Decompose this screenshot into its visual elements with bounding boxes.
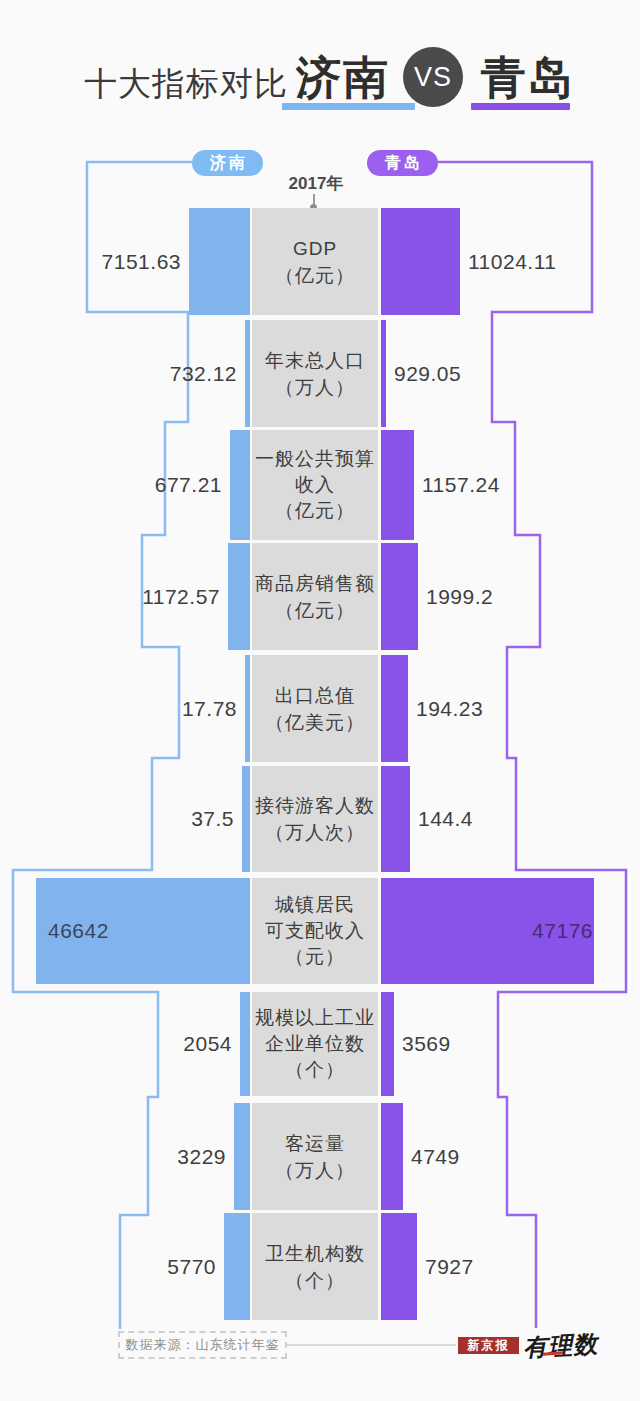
qingdao-value: 4749 (411, 1103, 460, 1210)
indicator-label-line: 企业单位数 (265, 1031, 365, 1057)
indicator-label-line: （亿元） (275, 498, 355, 524)
qingdao-value: 1157.24 (422, 430, 500, 540)
page-title-prefix: 十大指标对比： (84, 62, 322, 107)
youlishu-logo: 有理数 (522, 1328, 599, 1364)
indicator-label-line: 出口总值 (275, 682, 355, 709)
indicator-label-box: 接待游客人数（万人次） (252, 766, 378, 872)
indicator-label-line: （万人） (275, 374, 355, 401)
indicator-label-box: 卫生机构数（个） (252, 1213, 378, 1320)
indicator-label-box: 商品房销售额（亿元） (252, 543, 378, 650)
indicator-label-line: （个） (285, 1057, 345, 1083)
comparison-row: 一般公共预算收入（亿元）677.211157.24 (0, 430, 640, 540)
indicator-label-line: （个） (285, 1267, 345, 1294)
indicator-label-line: 可支配收入 (265, 918, 365, 944)
jinan-value: 7151.63 (102, 208, 181, 315)
qingdao-value: 3569 (402, 992, 451, 1096)
jinan-value: 17.78 (182, 655, 237, 762)
jinan-value: 2054 (183, 992, 232, 1096)
legend-pill-jinan: 济南 (192, 150, 263, 176)
qingdao-bar (381, 543, 418, 650)
qingdao-value: 144.4 (418, 766, 473, 872)
jinan-bar (245, 320, 250, 427)
page-title-city-qingdao: 青岛 (481, 48, 575, 108)
qingdao-value: 47176 (532, 878, 593, 984)
infographic-canvas: 十大指标对比： 济南 VS 青岛 济南 青岛 2017年 GDP（亿元）7151… (0, 0, 640, 1401)
indicator-label-line: （亿元） (275, 262, 355, 289)
qingdao-value: 7927 (425, 1213, 474, 1320)
beijing-news-logo: 新京报 (458, 1337, 519, 1354)
qingdao-bar (381, 992, 394, 1096)
qingdao-value: 1999.2 (426, 543, 493, 650)
indicator-label-box: 出口总值（亿美元） (252, 655, 378, 762)
vs-badge-label: VS (414, 62, 452, 93)
indicator-label-line: （元） (285, 944, 345, 970)
indicator-label-box: 客运量（万人） (252, 1103, 378, 1210)
comparison-row: 年末总人口（万人）732.12929.05 (0, 320, 640, 427)
indicator-label-line: （亿元） (275, 597, 355, 624)
indicator-label-line: 客运量 (285, 1130, 345, 1157)
comparison-row: 商品房销售额（亿元）1172.571999.2 (0, 543, 640, 650)
indicator-label-line: 规模以上工业 (255, 1005, 375, 1031)
data-source-box: 数据来源：山东统计年鉴 (118, 1331, 287, 1359)
comparison-row: 客运量（万人）32294749 (0, 1103, 640, 1210)
jinan-value: 732.12 (170, 320, 237, 427)
indicator-label-line: （万人次） (265, 819, 365, 846)
vs-badge: VS (403, 47, 463, 107)
jinan-value: 1172.57 (142, 543, 220, 650)
jinan-value: 677.21 (155, 430, 222, 540)
jinan-value: 46642 (48, 878, 109, 984)
legend-pill-qingdao: 青岛 (367, 150, 438, 176)
indicator-label-box: 城镇居民可支配收入（元） (252, 878, 378, 984)
comparison-row: 出口总值（亿美元）17.78194.23 (0, 655, 640, 762)
jinan-bar (240, 992, 250, 1096)
comparison-row: 城镇居民可支配收入（元）4664247176 (0, 878, 640, 984)
indicator-label-line: 商品房销售额 (255, 570, 375, 597)
indicator-label-line: 城镇居民 (275, 892, 355, 918)
indicator-label-box: 一般公共预算收入（亿元） (252, 430, 378, 540)
qingdao-value: 194.23 (416, 655, 483, 762)
page-title-city-jinan: 济南 (296, 48, 390, 108)
qingdao-bar (381, 1103, 403, 1210)
indicator-label-line: GDP (293, 235, 337, 262)
jinan-value: 37.5 (191, 766, 234, 872)
indicator-label-line: 年末总人口 (265, 347, 365, 374)
qingdao-value: 11024.11 (468, 208, 556, 315)
indicator-label-line: 一般公共预算 (255, 446, 375, 472)
comparison-row: GDP（亿元）7151.6311024.11 (0, 208, 640, 315)
youlishu-logo-text: 有理数 (522, 1330, 598, 1361)
qingdao-bar (381, 208, 460, 315)
qingdao-bar (381, 766, 410, 872)
indicator-label-line: （亿美元） (265, 709, 365, 736)
jinan-bar (228, 543, 250, 650)
jinan-bar (224, 1213, 250, 1320)
footer-connector-line (287, 1344, 456, 1346)
indicator-label-line: 收入 (295, 472, 335, 498)
comparison-row: 卫生机构数（个）57707927 (0, 1213, 640, 1320)
jinan-bar (245, 655, 250, 762)
qingdao-bar (381, 320, 386, 427)
indicator-label-box: 年末总人口（万人） (252, 320, 378, 427)
indicator-label-line: 接待游客人数 (255, 792, 375, 819)
indicator-label-box: GDP（亿元） (252, 208, 378, 315)
year-label: 2017年 (271, 172, 361, 195)
beijing-news-logo-text: 新京报 (468, 1337, 510, 1354)
jinan-value: 3229 (177, 1103, 226, 1210)
qingdao-bar (381, 655, 408, 762)
indicator-label-box: 规模以上工业企业单位数（个） (252, 992, 378, 1096)
comparison-row: 规模以上工业企业单位数（个）20543569 (0, 992, 640, 1096)
indicator-label-line: （万人） (275, 1157, 355, 1184)
jinan-bar (189, 208, 250, 315)
indicator-label-line: 卫生机构数 (265, 1240, 365, 1267)
comparison-row: 接待游客人数（万人次）37.5144.4 (0, 766, 640, 872)
qingdao-value: 929.05 (394, 320, 461, 427)
data-source-text: 数据来源：山东统计年鉴 (126, 1336, 280, 1354)
qingdao-bar (381, 1213, 417, 1320)
jinan-value: 5770 (167, 1213, 216, 1320)
jinan-bar (242, 766, 250, 872)
jinan-bar (230, 430, 250, 540)
qingdao-bar (381, 430, 414, 540)
jinan-bar (234, 1103, 250, 1210)
